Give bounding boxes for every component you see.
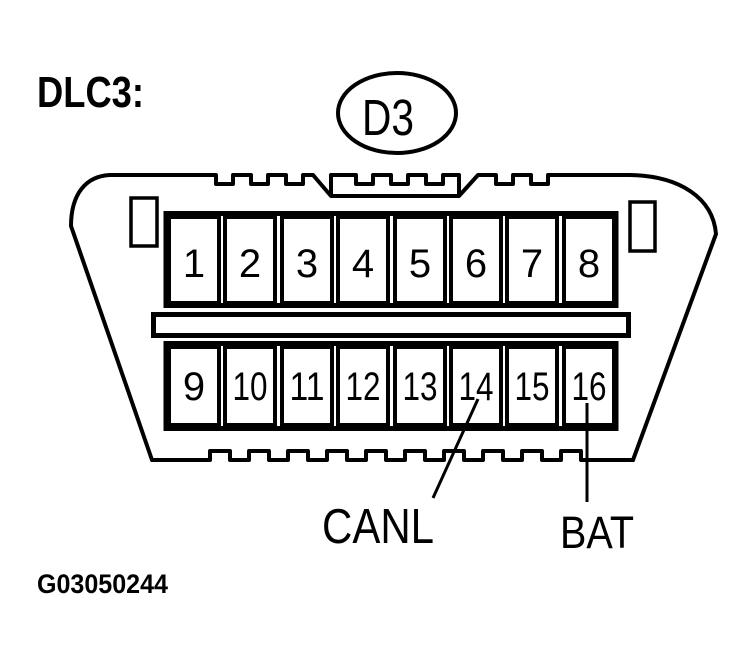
bat-label: BAT (560, 507, 634, 558)
connector-key-notch (331, 175, 459, 195)
mounting-slot-right (630, 202, 655, 251)
pin-row-top: 1 2 3 4 5 6 7 8 (166, 214, 616, 306)
pin-label-7: 7 (521, 242, 543, 286)
pin-label-4: 4 (352, 242, 374, 286)
connector-body: 1 2 3 4 5 6 7 8 9 10 (71, 175, 716, 460)
canl-label: CANL (322, 500, 434, 554)
pin-label-6: 6 (465, 242, 487, 286)
pin-label-12: 12 (346, 365, 381, 409)
pin-label-15: 15 (515, 365, 550, 409)
diagram-title: DLC3: (37, 68, 144, 117)
connector-outline-bottom (152, 451, 633, 460)
pin-label-9: 9 (183, 365, 205, 409)
figure-id: G03050244 (37, 569, 168, 599)
pin-label-3: 3 (296, 242, 318, 286)
pin-row-bottom: 9 10 11 12 13 14 15 16 (166, 344, 616, 429)
pin-label-2: 2 (239, 242, 261, 286)
mounting-slot-left (131, 198, 157, 246)
connector-code-callout: D3 (338, 73, 456, 153)
pin-label-10: 10 (233, 365, 268, 409)
pin-label-5: 5 (409, 242, 431, 286)
pin-label-16: 16 (572, 365, 607, 409)
center-bar (154, 315, 629, 336)
pin-label-13: 13 (403, 365, 438, 409)
pin-label-1: 1 (183, 242, 205, 286)
diagram-page: DLC3: D3 (0, 0, 754, 668)
pin-label-11: 11 (290, 365, 325, 409)
pin-label-8: 8 (578, 242, 600, 286)
connector-code-label: D3 (362, 89, 414, 146)
dlc3-connector-figure: DLC3: D3 (0, 0, 754, 668)
